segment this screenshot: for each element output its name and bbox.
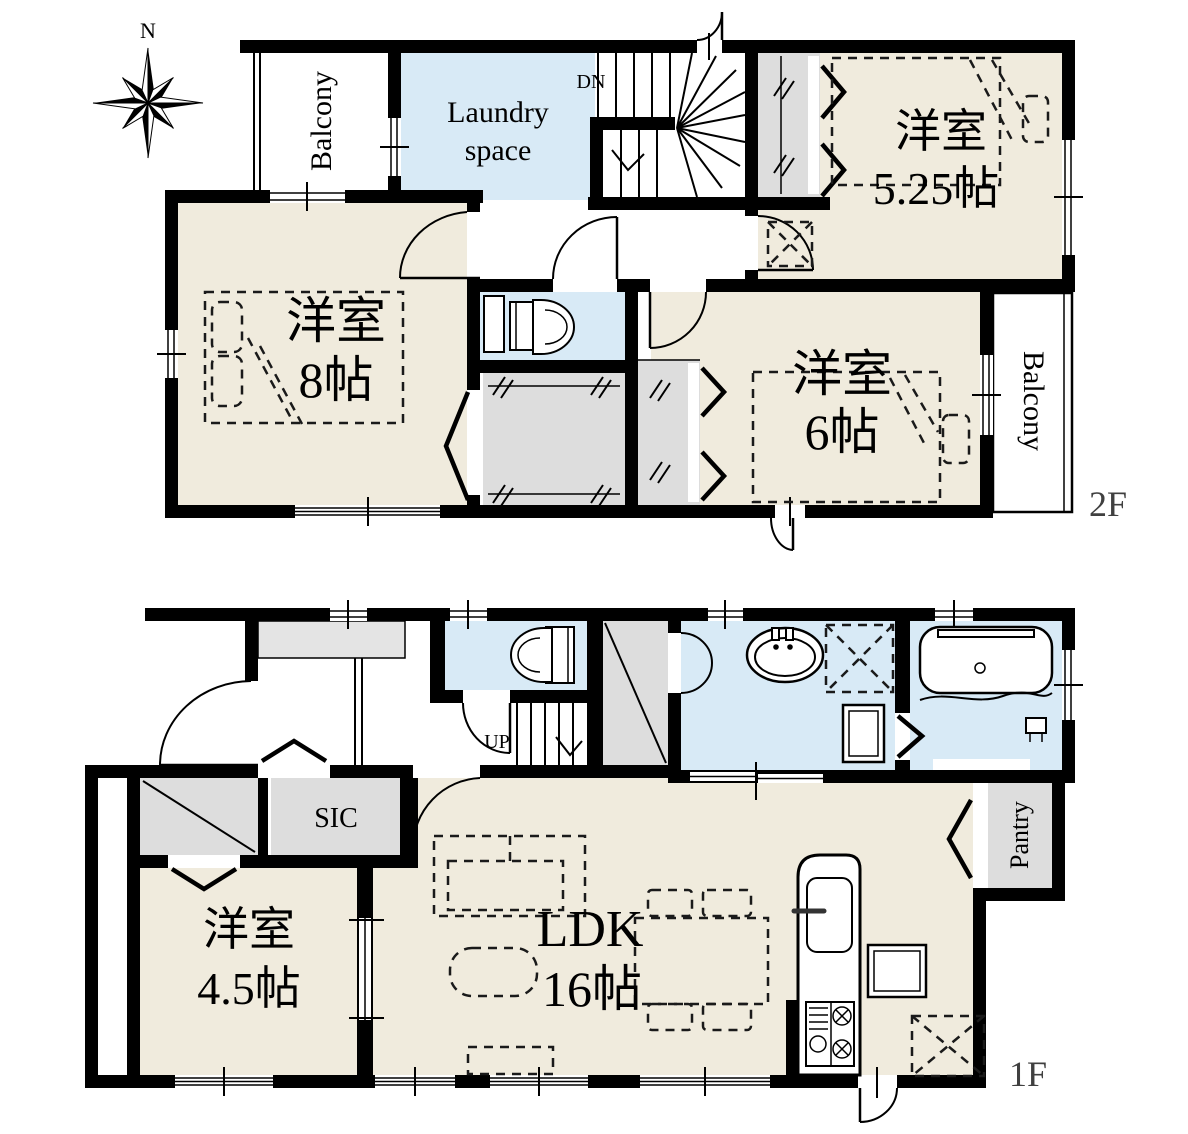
ldk-size: 16帖 [542,961,642,1017]
room-8-size: 8帖 [299,352,374,408]
shower-fixture-icon [1026,718,1046,733]
sic-chevron [262,741,326,761]
stove-icon [806,1002,854,1066]
floor-2f-label: 2F [1089,484,1127,524]
balcony-2f-right-label: Balcony [1017,351,1050,451]
room-45-size: 4.5帖 [197,963,301,1014]
balcony-2f-left-outline [254,53,260,190]
floor-plan-canvas: N [0,0,1188,1134]
toilet-1f-icon [511,627,574,683]
pantry-label: Pantry [1005,801,1034,869]
room-525-size: 5.25帖 [873,163,1000,214]
washroom-sink-icon [747,628,823,682]
washroom-mat [843,705,884,762]
ldk-name: LDK [537,901,644,958]
stairs-1f-up-label: UP [484,731,510,753]
compass-rose: N [93,18,203,158]
stairs-1f [531,703,582,765]
laundry-label-line1: Laundry [447,96,549,129]
room-6-name: 洋室 [792,346,892,402]
balcony-2f-left-label: Balcony [305,71,338,171]
floor-1f-label: 1F [1009,1054,1047,1094]
room-45-name: 洋室 [203,904,295,955]
room-8-name: 洋室 [286,293,386,349]
laundry-label-line2: space [465,134,532,167]
floor-1f-plan: SIC UP 洋室 4.5帖 LDK 16帖 Pantry 1F [85,600,1083,1122]
room-6-size: 6帖 [805,404,880,460]
stairs-2f-dn-label: DN [577,71,606,93]
kitchen-sink-icon [807,878,852,952]
compass-north-label: N [140,18,156,43]
front-door-swing [160,681,251,765]
kitchen-back-door-swing [860,1088,897,1122]
floor-2f-plan: Laundry space DN 洋室 5.25帖 洋室 8帖 洋室 6帖 Ba… [157,12,1127,550]
toilet-2f-door-swing [553,217,617,279]
kitchen-cupboard [868,945,926,997]
room-525-name: 洋室 [895,106,987,157]
floor-plan-page: N [0,0,1188,1134]
sic-label: SIC [314,803,358,834]
entry-shoe-cabinet [258,621,405,658]
toilet-2f-icon [484,296,574,354]
